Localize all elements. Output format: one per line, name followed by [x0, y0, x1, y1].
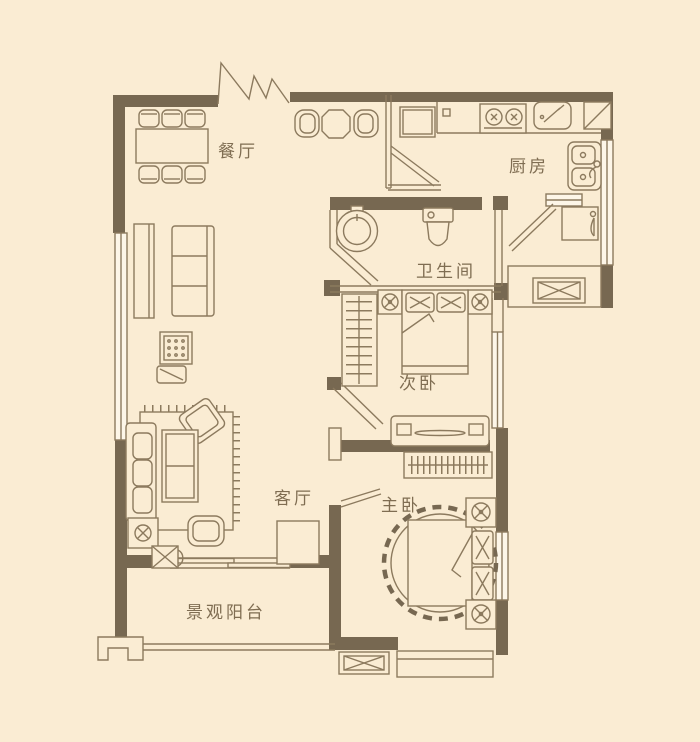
dining-chair	[162, 166, 182, 183]
side-table-lamp	[128, 518, 158, 548]
nightstand	[466, 600, 496, 629]
stove	[480, 104, 526, 133]
media-stand	[157, 366, 186, 383]
ac-platform	[508, 266, 601, 307]
plant-stand	[152, 546, 183, 568]
bay-window	[397, 651, 493, 677]
second-bedroom: 次卧	[342, 290, 492, 446]
tv-cabinet	[134, 224, 154, 318]
dining-chair	[139, 166, 159, 183]
dining-table	[136, 129, 208, 163]
dresser	[391, 416, 489, 446]
dining-chair	[185, 166, 205, 183]
tea-chair-cushion	[300, 114, 315, 133]
coffee-table	[162, 430, 198, 502]
room-label-master-bedroom: 主卧	[381, 496, 421, 515]
kitchen: 厨房	[437, 102, 611, 240]
foyer	[295, 107, 450, 138]
wardrobe-master	[404, 452, 492, 478]
balcony: 景观阳台	[186, 603, 266, 622]
floor-plan-canvas: 餐厅	[0, 0, 700, 742]
nightstand	[378, 290, 402, 314]
fridge	[562, 207, 598, 240]
double-bed	[402, 290, 468, 374]
sliding-door	[170, 558, 290, 568]
washbasin	[337, 206, 378, 252]
room-label-living: 客厅	[274, 489, 314, 508]
room-label-balcony: 景观阳台	[186, 603, 266, 622]
kitchen-east-window	[601, 140, 613, 265]
nightstand	[468, 290, 492, 314]
wardrobe-second-bedroom	[342, 294, 377, 386]
dining-room: 餐厅	[136, 110, 258, 183]
cutting-board	[534, 102, 571, 129]
corner-shelf	[584, 102, 611, 129]
balcony-railing	[143, 644, 335, 650]
nightstand	[466, 498, 496, 527]
dining-chair	[185, 110, 205, 127]
tv	[160, 332, 192, 364]
toilet	[423, 208, 453, 246]
corner-pillar	[98, 637, 143, 660]
living-room: 客厅	[126, 224, 319, 568]
room-label-bathroom: 卫生间	[416, 262, 476, 281]
sofa	[126, 423, 156, 521]
second-bedroom-east-window	[492, 332, 503, 428]
entry-door	[218, 63, 289, 104]
end-table	[277, 521, 319, 564]
kitchen-sink	[568, 142, 601, 190]
floor-plan: 餐厅	[0, 0, 700, 742]
room-label-kitchen: 厨房	[509, 157, 549, 176]
dining-chair	[162, 110, 182, 127]
living-west-window	[115, 233, 127, 440]
shoe-cabinet	[400, 107, 435, 137]
room-label-second-bedroom: 次卧	[399, 374, 439, 393]
tea-chair-cushion	[358, 114, 373, 133]
sofa-north	[172, 226, 214, 316]
dining-chair	[139, 110, 159, 127]
master-door	[341, 489, 381, 507]
tea-table	[322, 110, 350, 138]
room-label-dining: 餐厅	[218, 142, 258, 161]
master-bedroom: 主卧	[381, 452, 496, 629]
master-south-fixed-window	[339, 652, 389, 674]
switch-box	[443, 109, 450, 116]
armchair	[188, 516, 224, 546]
bathroom: 卫生间	[337, 206, 477, 281]
